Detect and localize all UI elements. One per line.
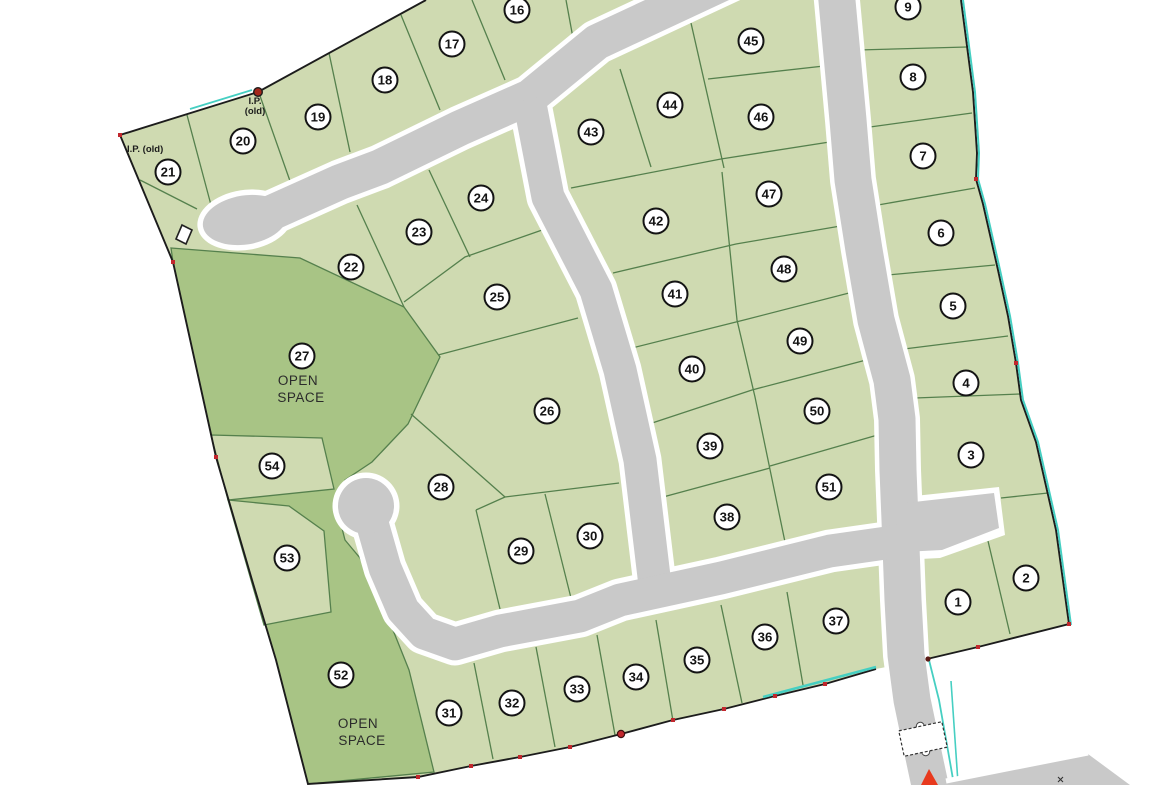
svg-text:SPACE: SPACE	[338, 733, 385, 748]
svg-text:54: 54	[265, 459, 280, 474]
svg-text:27: 27	[295, 349, 310, 364]
svg-text:40: 40	[685, 362, 700, 377]
svg-text:48: 48	[777, 262, 792, 277]
svg-text:38: 38	[720, 510, 735, 525]
svg-text:(old): (old)	[245, 106, 266, 117]
svg-text:4: 4	[962, 376, 970, 391]
svg-text:37: 37	[829, 614, 844, 629]
svg-text:35: 35	[690, 653, 705, 668]
svg-text:OPEN: OPEN	[278, 373, 318, 388]
svg-text:OPEN: OPEN	[338, 716, 378, 731]
svg-text:41: 41	[668, 287, 683, 302]
svg-text:SPACE: SPACE	[277, 390, 324, 405]
svg-text:1: 1	[954, 595, 961, 610]
svg-text:44: 44	[663, 98, 678, 113]
svg-text:29: 29	[514, 544, 529, 559]
svg-text:43: 43	[584, 125, 599, 140]
svg-text:31: 31	[442, 706, 457, 721]
svg-text:45: 45	[744, 34, 759, 49]
svg-text:22: 22	[344, 260, 359, 275]
svg-text:6: 6	[937, 226, 944, 241]
svg-text:I.P. (old): I.P. (old)	[127, 144, 163, 155]
svg-text:25: 25	[490, 290, 505, 305]
svg-text:34: 34	[629, 670, 644, 685]
svg-text:47: 47	[762, 187, 777, 202]
svg-text:28: 28	[434, 480, 449, 495]
svg-text:17: 17	[445, 37, 460, 52]
svg-text:5: 5	[949, 299, 956, 314]
svg-text:2: 2	[1022, 571, 1029, 586]
svg-text:21: 21	[161, 165, 176, 180]
svg-text:19: 19	[311, 110, 326, 125]
svg-text:30: 30	[583, 529, 598, 544]
svg-text:49: 49	[793, 334, 808, 349]
svg-text:46: 46	[754, 110, 769, 125]
svg-text:32: 32	[505, 696, 520, 711]
svg-text:20: 20	[236, 134, 251, 149]
svg-text:42: 42	[649, 214, 664, 229]
svg-text:24: 24	[474, 191, 489, 206]
svg-text:50: 50	[810, 404, 825, 419]
svg-text:3: 3	[967, 448, 974, 463]
svg-text:33: 33	[570, 682, 585, 697]
svg-text:26: 26	[540, 404, 555, 419]
svg-text:18: 18	[378, 73, 393, 88]
svg-text:52: 52	[334, 668, 349, 683]
svg-text:8: 8	[909, 70, 916, 85]
svg-text:51: 51	[822, 480, 837, 495]
svg-text:53: 53	[280, 551, 295, 566]
svg-text:9: 9	[904, 0, 911, 15]
svg-text:7: 7	[919, 149, 926, 164]
svg-text:23: 23	[412, 225, 427, 240]
svg-text:39: 39	[703, 439, 718, 454]
svg-text:36: 36	[758, 630, 773, 645]
svg-text:16: 16	[510, 3, 525, 18]
